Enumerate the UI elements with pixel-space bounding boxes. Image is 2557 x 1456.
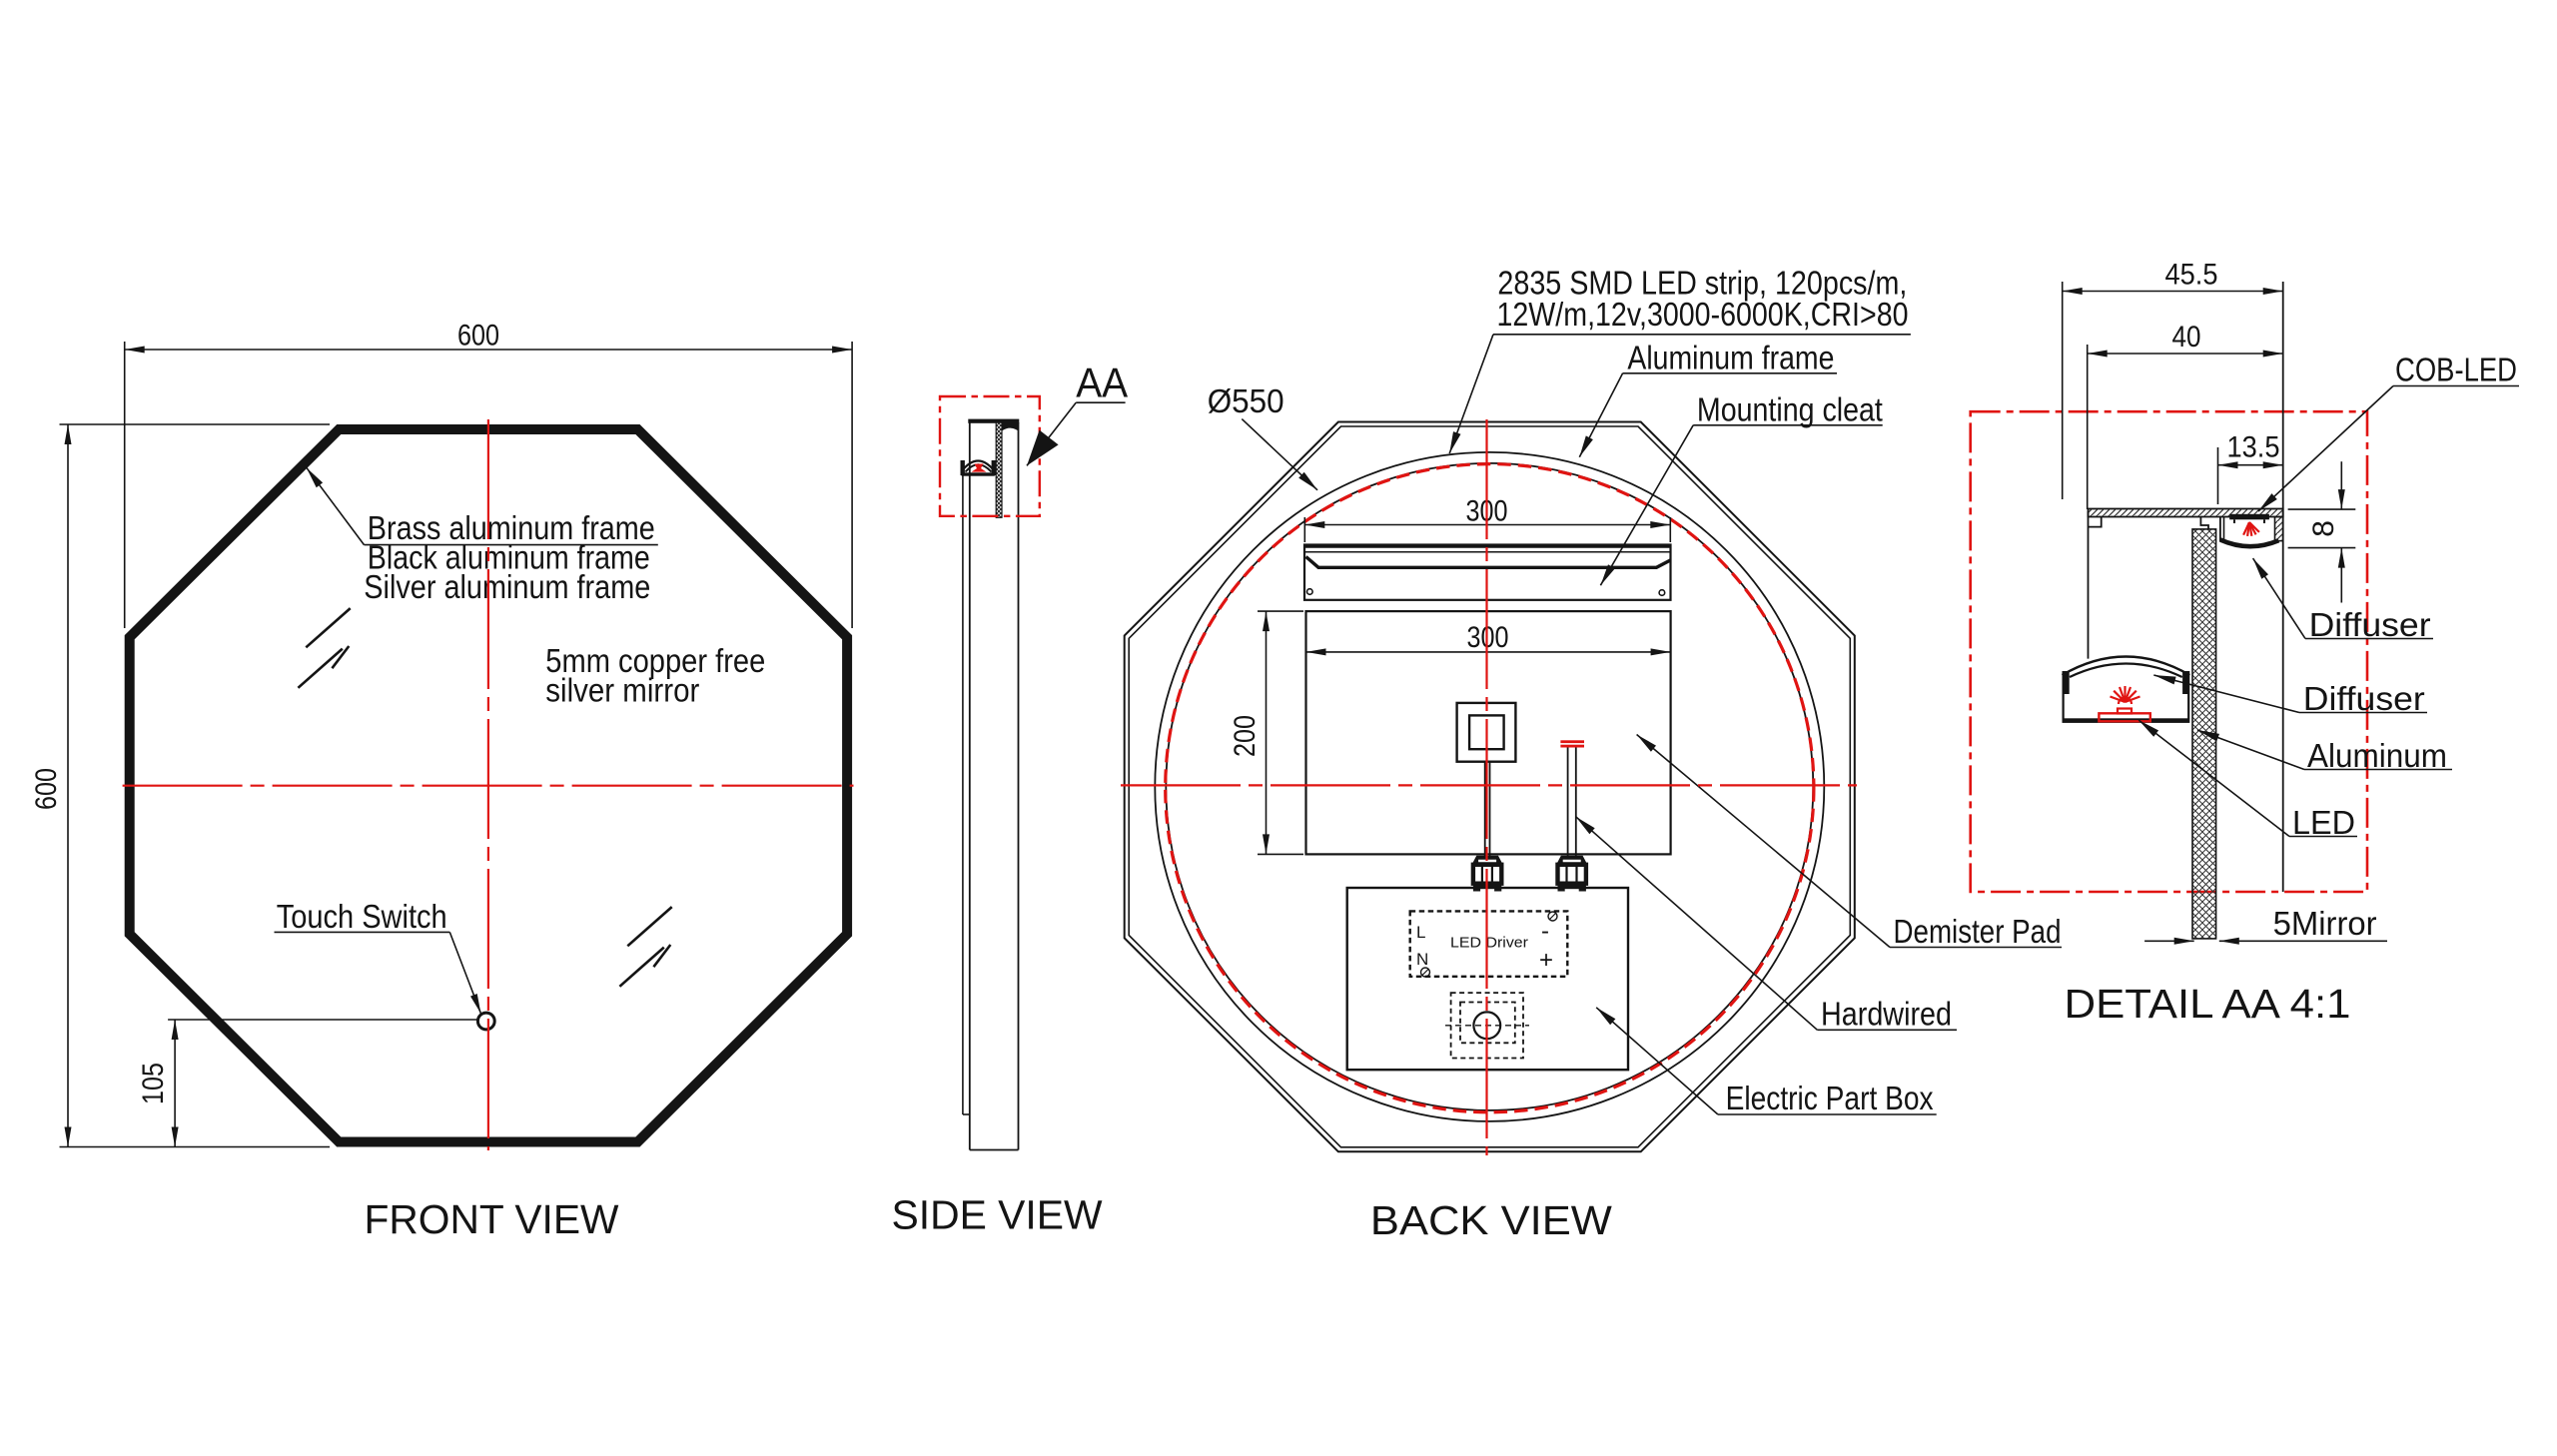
svg-text:DETAIL AA 4:1: DETAIL AA 4:1 bbox=[2065, 981, 2351, 1027]
svg-text:BACK VIEW: BACK VIEW bbox=[1370, 1197, 1612, 1243]
svg-text:LED Driver: LED Driver bbox=[1450, 936, 1528, 952]
svg-text:silver mirror: silver mirror bbox=[545, 672, 699, 709]
svg-text:AA: AA bbox=[1076, 359, 1128, 405]
svg-text:Aluminum: Aluminum bbox=[2307, 737, 2447, 774]
svg-text:-: - bbox=[1541, 918, 1549, 945]
svg-text:Silver aluminum frame: Silver aluminum frame bbox=[364, 568, 650, 605]
svg-text:40: 40 bbox=[2172, 321, 2201, 354]
svg-text:Diffuser: Diffuser bbox=[2309, 606, 2431, 643]
svg-text:45.5: 45.5 bbox=[2165, 259, 2218, 292]
svg-text:Aluminum frame: Aluminum frame bbox=[1627, 339, 1834, 375]
svg-text:200: 200 bbox=[1229, 715, 1262, 757]
svg-text:Diffuser: Diffuser bbox=[2303, 680, 2425, 717]
svg-text:600: 600 bbox=[457, 320, 499, 353]
svg-text:Demister Pad: Demister Pad bbox=[1894, 913, 2062, 950]
svg-text:SIDE VIEW: SIDE VIEW bbox=[892, 1191, 1103, 1237]
svg-text:Hardwired: Hardwired bbox=[1821, 996, 1952, 1033]
svg-text:Touch Switch: Touch Switch bbox=[277, 898, 447, 935]
svg-text:105: 105 bbox=[137, 1063, 170, 1104]
svg-text:LED: LED bbox=[2292, 804, 2355, 841]
svg-text:Mounting cleat: Mounting cleat bbox=[1697, 390, 1883, 427]
svg-text:Ø550: Ø550 bbox=[1208, 382, 1284, 419]
svg-text:COB-LED: COB-LED bbox=[2395, 352, 2517, 388]
svg-text:8: 8 bbox=[2307, 520, 2340, 537]
svg-text:600: 600 bbox=[30, 768, 63, 810]
svg-text:+: + bbox=[1539, 947, 1553, 974]
svg-text:L: L bbox=[1416, 923, 1425, 942]
svg-text:FRONT VIEW: FRONT VIEW bbox=[365, 1196, 619, 1242]
svg-text:13.5: 13.5 bbox=[2227, 431, 2280, 464]
svg-text:12W/m,12v,3000-6000K,CRI>80: 12W/m,12v,3000-6000K,CRI>80 bbox=[1497, 296, 1909, 333]
svg-text:N: N bbox=[1416, 950, 1428, 969]
svg-text:5Mirror: 5Mirror bbox=[2273, 905, 2377, 942]
svg-text:Electric Part Box: Electric Part Box bbox=[1726, 1080, 1934, 1116]
